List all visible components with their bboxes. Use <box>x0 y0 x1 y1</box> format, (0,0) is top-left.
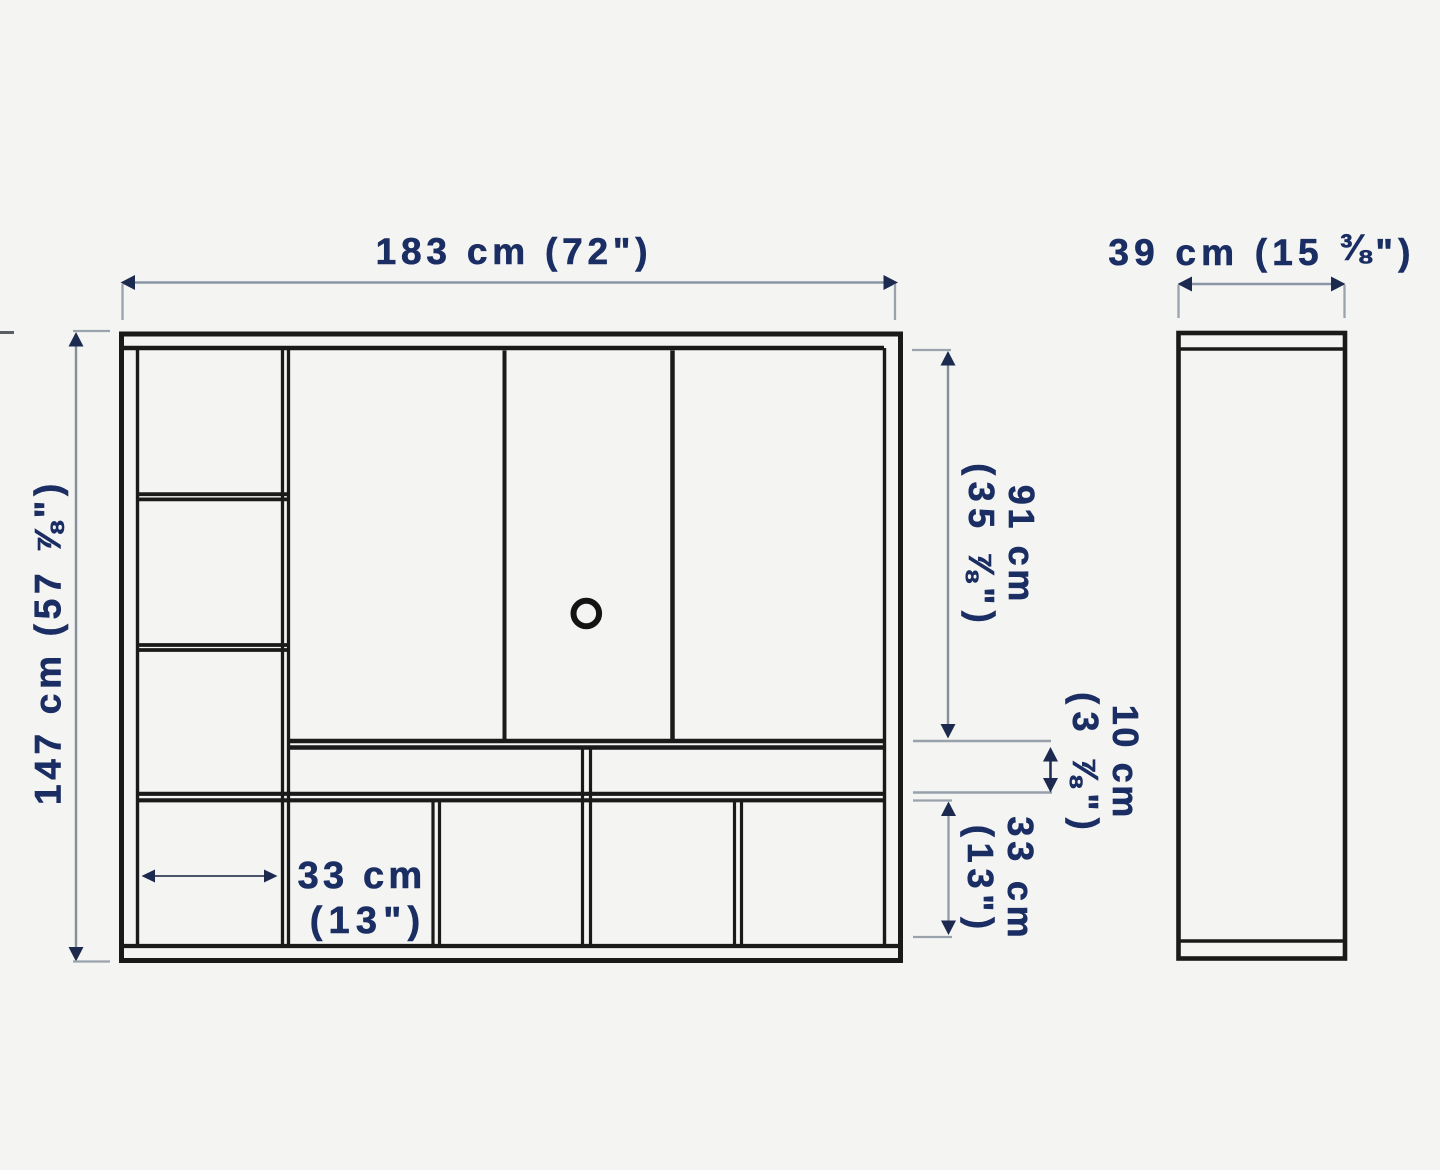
svg-text:(3 ⅞"): (3 ⅞") <box>1065 692 1106 837</box>
svg-text:(35 ⅞"): (35 ⅞") <box>961 463 1002 629</box>
svg-text:39 cm (15 ⅜"): 39 cm (15 ⅜") <box>1108 227 1415 273</box>
svg-text:183 cm (72"): 183 cm (72") <box>376 231 653 272</box>
svg-text:(13"): (13") <box>960 825 1001 935</box>
svg-text:91 cm: 91 cm <box>1001 485 1042 605</box>
svg-text:147 cm (57 ⅞"): 147 cm (57 ⅞") <box>28 479 69 805</box>
svg-text:33 cm: 33 cm <box>1000 816 1041 942</box>
svg-text:10 cm: 10 cm <box>1105 705 1146 820</box>
svg-text:33 cm: 33 cm <box>298 855 427 897</box>
svg-text:(13"): (13") <box>310 900 427 942</box>
